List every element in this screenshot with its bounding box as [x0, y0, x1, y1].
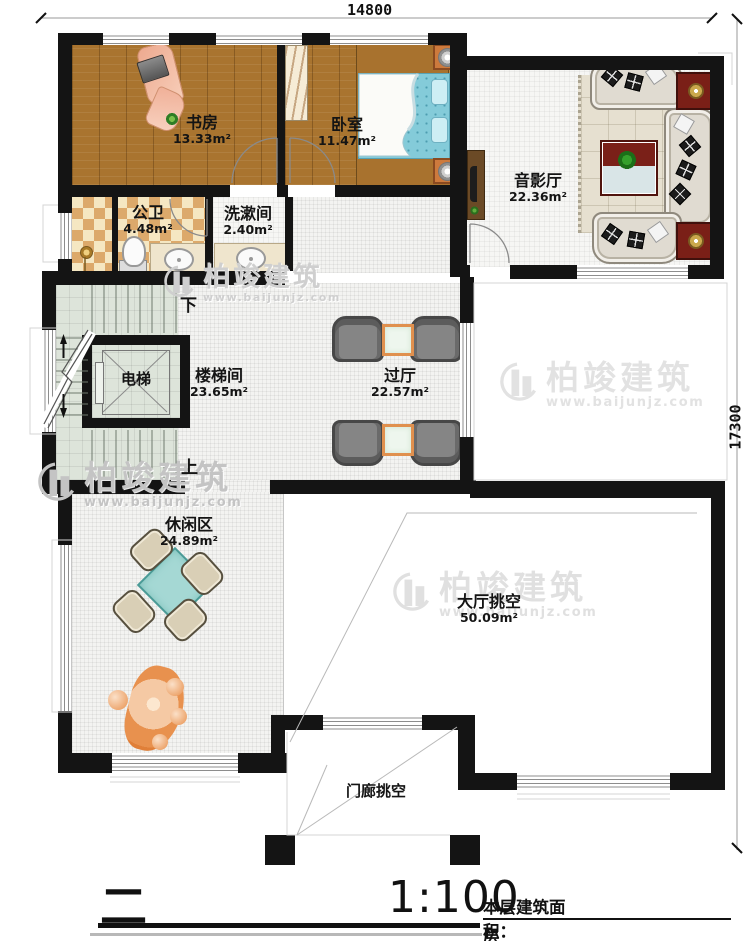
room-name: 过厅: [371, 368, 429, 385]
room-area: 24.89m²: [160, 534, 218, 547]
room-name: 大厅挑空: [457, 594, 521, 611]
room-label-elevator: 电梯: [121, 372, 151, 388]
watermark-url: www.baijunjz.com: [546, 396, 704, 410]
watermark-brand: 柏竣建筑: [84, 461, 242, 496]
room-area: 22.57m²: [371, 385, 429, 398]
eave-lines: [30, 53, 732, 835]
room-name: 楼梯间: [190, 368, 248, 385]
floor-plan: 柏竣建筑 www.baijunjz.com 柏竣建筑 www.baijunjz.…: [0, 0, 750, 941]
room-name: 洗漱间: [223, 206, 272, 223]
room-name: 电梯: [121, 372, 151, 388]
title-rule-shadow: [90, 933, 482, 936]
floor-height-row: 层高：3.6m: [483, 923, 529, 941]
room-label-washroom: 洗漱间 2.40m²: [223, 206, 272, 236]
room-name: 门廊挑空: [346, 784, 406, 800]
room-area: 22.36m²: [509, 190, 567, 203]
room-label-hall-void: 大厅挑空 50.09m²: [457, 594, 521, 624]
watermark-logo-icon: [33, 458, 77, 512]
watermark-brand: 柏竣建筑: [546, 361, 704, 396]
watermark: 柏竣建筑 www.baijunjz.com: [33, 458, 263, 512]
door-arcs: [170, 138, 509, 263]
stair-down-label: 下: [180, 291, 197, 316]
stair-treads: [56, 285, 176, 478]
room-name: 音影厅: [509, 173, 567, 190]
room-label-leisure: 休闲区 24.89m²: [160, 517, 218, 547]
title-divider: [483, 918, 731, 920]
room-name: 公卫: [123, 205, 172, 222]
room-name: 休闲区: [160, 517, 218, 534]
watermark: 柏竣建筑 www.baijunjz.com: [495, 358, 730, 412]
room-label-av-room: 音影厅 22.36m²: [509, 173, 567, 203]
stair-up-label: 上: [181, 453, 198, 478]
room-label-stairwell: 楼梯间 23.65m²: [190, 368, 248, 398]
dimension-height: 17300: [727, 404, 745, 449]
room-area: 50.09m²: [457, 611, 521, 624]
watermark-brand: 柏竣建筑: [203, 264, 341, 292]
floor-height-label: 层高：: [483, 927, 516, 941]
room-area: 13.33m²: [173, 132, 231, 145]
watermark-url: www.baijunjz.com: [84, 496, 242, 510]
room-name: 卧室: [318, 117, 376, 134]
watermark-logo-icon: [495, 358, 539, 412]
room-name: 书房: [173, 115, 231, 132]
room-area: 11.47m²: [318, 134, 376, 147]
room-label-study: 书房 13.33m²: [173, 115, 231, 145]
room-label-toilet: 公卫 4.48m²: [123, 205, 172, 235]
title-rule: [98, 923, 480, 928]
watermark-logo-icon: [388, 568, 432, 622]
room-area: 4.48m²: [123, 222, 172, 235]
room-area: 2.40m²: [223, 223, 272, 236]
room-label-porch-void: 门廊挑空: [346, 784, 406, 800]
watermark-url: www.baijunjz.com: [203, 292, 341, 304]
page-title: 二层平面图: [100, 868, 149, 941]
room-label-hallway: 过厅 22.57m²: [371, 368, 429, 398]
room-label-bedroom: 卧室 11.47m²: [318, 117, 376, 147]
room-area: 23.65m²: [190, 385, 248, 398]
dimension-width: 14800: [347, 1, 392, 19]
